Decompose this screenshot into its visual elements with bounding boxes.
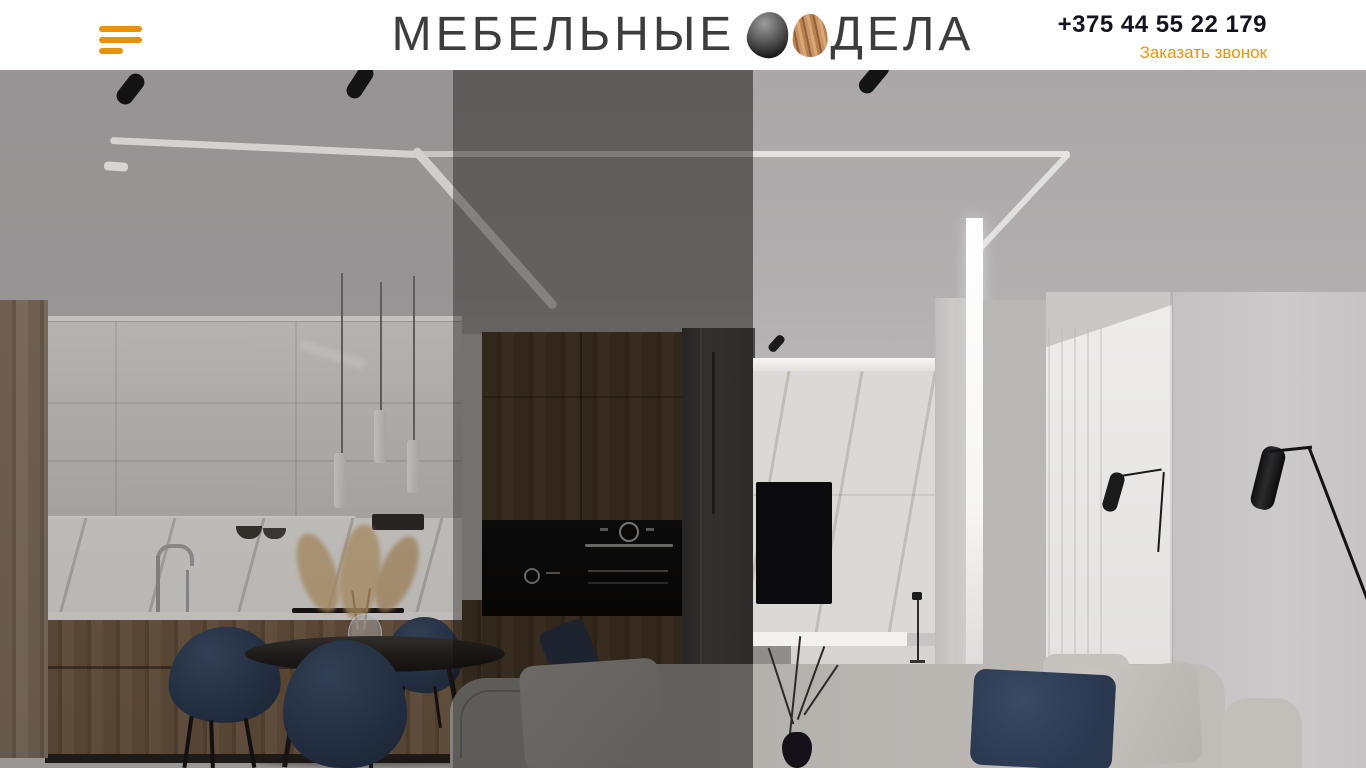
ceiling-spotlight xyxy=(343,70,376,101)
hamburger-bar xyxy=(99,37,142,43)
tv-wall-led-top xyxy=(753,358,937,371)
oven-trim-line xyxy=(588,582,668,584)
oven-trim-line xyxy=(588,570,668,572)
menu-button[interactable] xyxy=(99,25,143,55)
faucet-stem xyxy=(156,556,160,612)
panel-seam xyxy=(115,321,117,520)
panel-seam xyxy=(45,402,462,404)
table-lamp-stem xyxy=(917,598,919,662)
branch-twig xyxy=(768,648,795,725)
tall-wood-column xyxy=(0,300,48,758)
wardrobe-seam xyxy=(482,396,682,398)
sofa-arm-right xyxy=(1222,698,1302,768)
hero-image xyxy=(0,70,1366,768)
faucet-small xyxy=(186,570,189,612)
decor-branch xyxy=(750,636,850,768)
pendant-cord xyxy=(341,273,343,453)
oven-handle xyxy=(585,544,673,547)
branch-twig xyxy=(797,646,826,720)
mid-wall-strip xyxy=(462,334,482,600)
fridge-handle xyxy=(712,352,715,514)
pendant-shade xyxy=(334,453,346,508)
request-call-link[interactable]: Заказать звонок xyxy=(1140,44,1267,62)
oven-control-mark xyxy=(546,572,560,574)
ceiling-spotlight xyxy=(113,70,147,107)
oven-dial xyxy=(524,568,540,584)
hamburger-bar xyxy=(99,26,142,32)
phone-number[interactable]: +375 44 55 22 179 xyxy=(1058,12,1267,38)
pendant-shade xyxy=(374,410,386,463)
ceiling-led-line xyxy=(415,151,1070,157)
sofa-pillow-grey xyxy=(518,657,665,768)
panel-seam xyxy=(45,460,462,462)
counter-appliance xyxy=(372,514,424,530)
logo-wood-egg-icon xyxy=(792,14,827,57)
logo-dark-egg-icon xyxy=(742,8,793,63)
soffit-spotlight xyxy=(767,333,786,353)
panel-seam xyxy=(295,321,297,520)
logo[interactable]: МЕБЕЛЬНЫЕ ДЕЛА xyxy=(392,8,975,62)
ceiling-led-diagonal-right xyxy=(976,152,1070,253)
oven-control-mark xyxy=(646,528,654,531)
sofa-pillow-navy xyxy=(970,668,1117,768)
ceiling-led-corner xyxy=(104,161,129,172)
oven-dial xyxy=(619,522,639,542)
branch-vase xyxy=(782,732,812,768)
site-header: МЕБЕЛЬНЫЕ ДЕЛА +375 44 55 22 179 Заказат… xyxy=(0,0,1366,70)
table-lamp-head xyxy=(912,592,922,600)
table-lamp-base xyxy=(910,660,925,663)
ceiling-led-diagonal-left xyxy=(411,146,558,311)
ceiling-led-line-left xyxy=(110,137,418,158)
oven-control-mark xyxy=(600,528,608,531)
hamburger-bar xyxy=(99,48,123,54)
built-in-ovens xyxy=(482,520,682,616)
curtain xyxy=(1048,328,1104,658)
logo-word-left: МЕБЕЛЬНЫЕ xyxy=(392,8,736,62)
ceiling-spotlight xyxy=(856,70,893,97)
logo-word-right: ДЕЛА xyxy=(830,8,974,62)
pendant-cord xyxy=(413,276,415,440)
tv-screen xyxy=(756,482,832,604)
header-contact: +375 44 55 22 179 Заказать звонок xyxy=(1058,12,1267,63)
pendant-cord xyxy=(380,282,382,410)
kitchen-wall-panels xyxy=(45,321,462,521)
pendant-shade xyxy=(407,440,419,493)
faucet-arc xyxy=(156,544,194,566)
